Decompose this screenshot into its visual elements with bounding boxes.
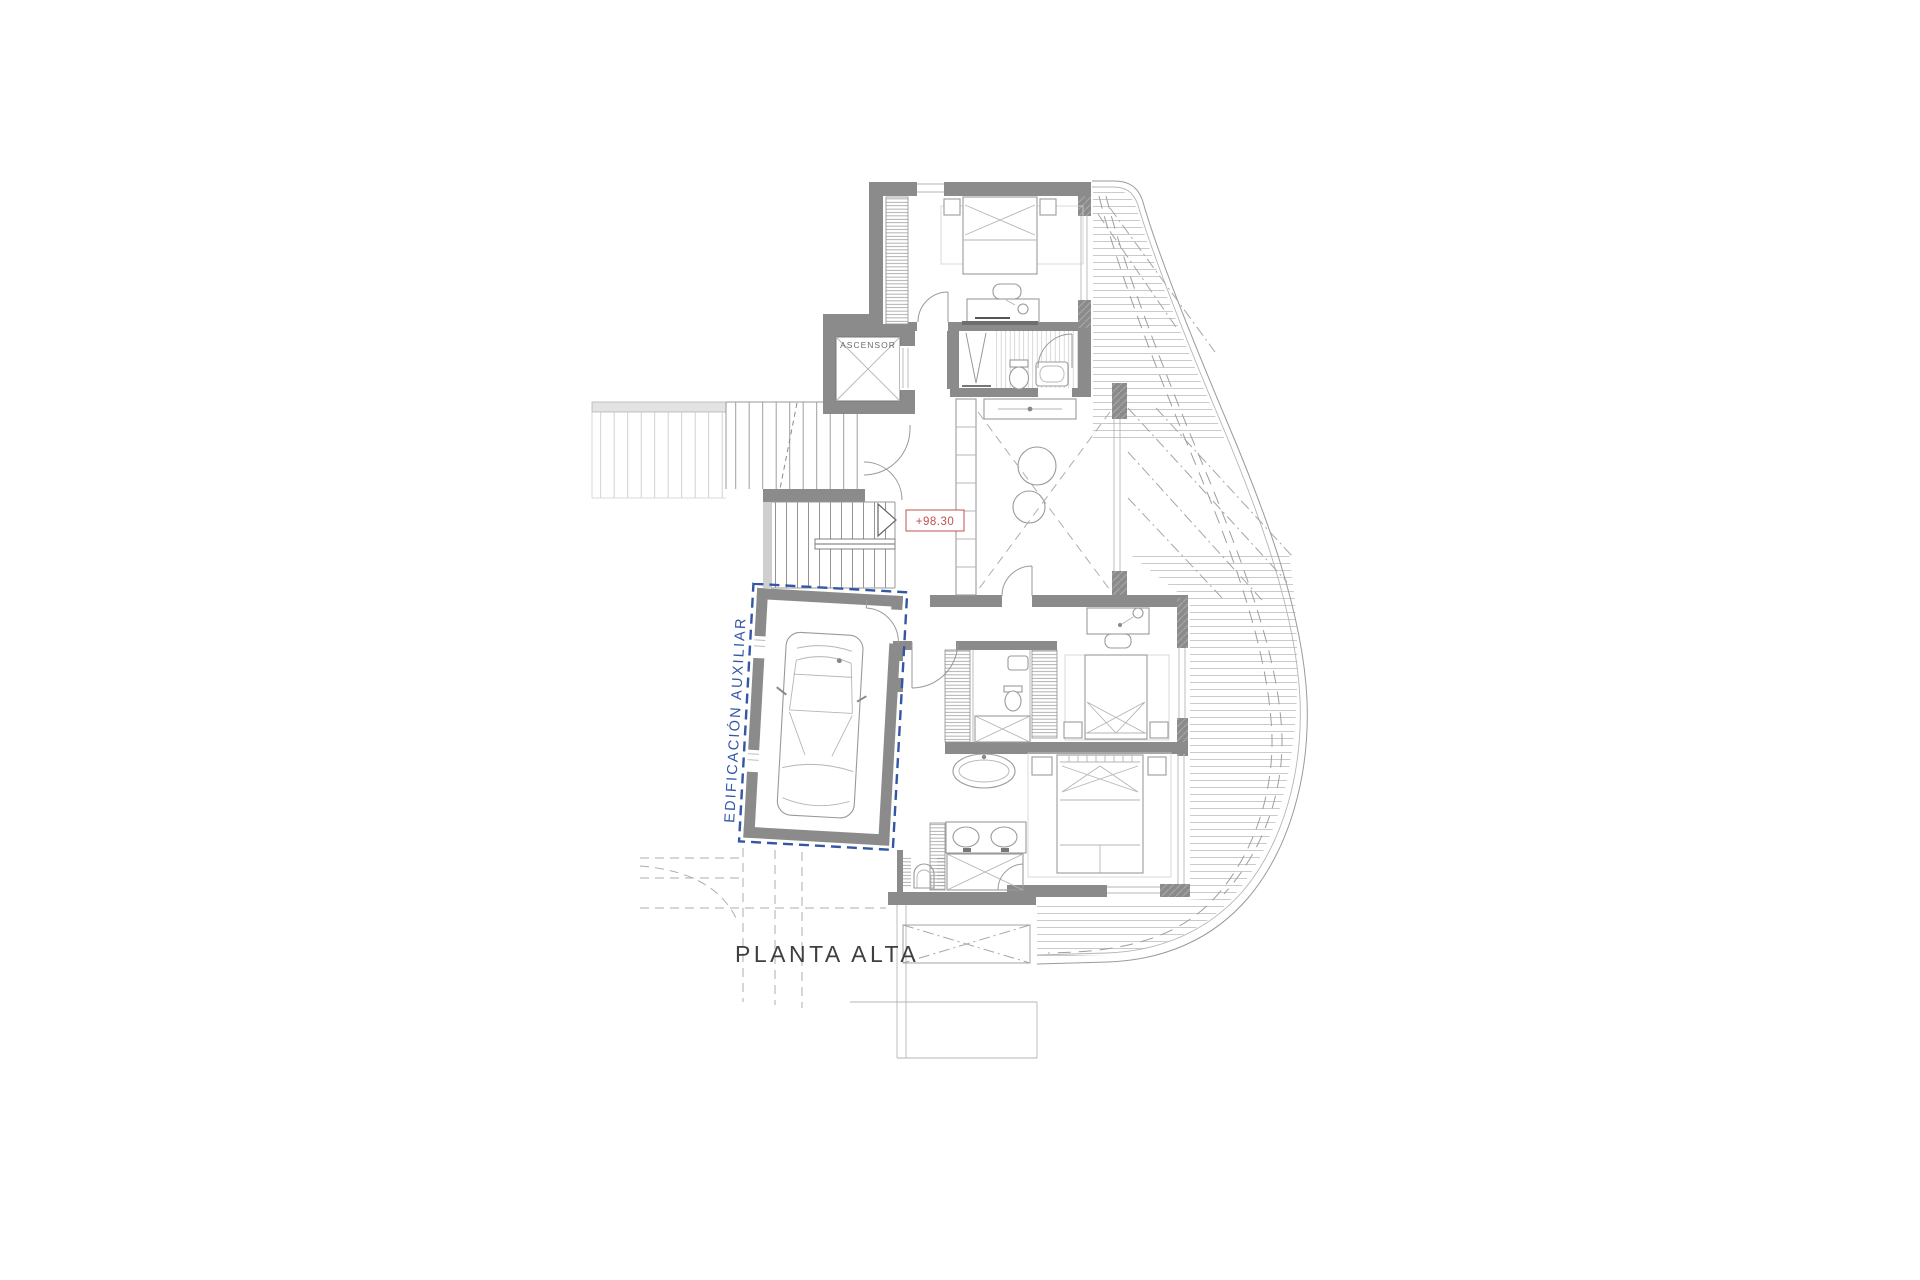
plan-title: PLANTA ALTA: [735, 941, 919, 967]
counter: [962, 321, 1038, 325]
bathtub: [953, 754, 1015, 788]
auxiliary-building-label: EDIFICACIÓN AUXILIAR: [721, 616, 750, 823]
shower: [962, 333, 991, 386]
door-arc: [918, 292, 948, 322]
bathroom-bottom: [899, 754, 1026, 890]
car: [770, 631, 870, 819]
floor-plan-svg: ASCENSOR: [0, 0, 1920, 1280]
stairs-side-wall: [763, 502, 772, 588]
dresser: [984, 399, 1076, 419]
wardrobe: [886, 197, 908, 324]
void-skylight: [903, 925, 1030, 963]
top-bedroom: [886, 197, 1083, 324]
double-vanity: [946, 822, 1026, 853]
exterior-wall-band: [592, 402, 726, 412]
shower: [975, 716, 1030, 742]
shower: [947, 854, 1023, 890]
bottom-bedroom: [1028, 753, 1171, 877]
middle-bedroom: [945, 608, 1169, 742]
floor-plan-canvas: ASCENSOR: [0, 0, 1920, 1280]
toilet: [1010, 360, 1029, 389]
toilet: [1004, 686, 1022, 711]
garage: EDIFICACIÓN AUXILIAR: [720, 583, 907, 850]
level-value: +98.30: [916, 516, 955, 528]
dressing-room: [956, 399, 1110, 596]
closet-nook: [945, 650, 1057, 742]
bathroom-top: [962, 321, 1078, 389]
level-marker: +98.30: [906, 510, 964, 531]
elevator-label: ASCENSOR: [840, 340, 896, 350]
sink: [1008, 656, 1028, 670]
cabinet-column: [956, 399, 976, 595]
bed: [1064, 655, 1168, 739]
stool: [1018, 447, 1056, 485]
elevator: ASCENSOR: [823, 324, 915, 414]
stairs-upper-flight: [726, 402, 858, 489]
desk: [1087, 608, 1149, 648]
desk: [967, 284, 1039, 322]
door-arc: [1002, 566, 1032, 596]
sink: [1036, 362, 1068, 386]
wc: [899, 856, 945, 888]
bed: [1032, 755, 1166, 873]
bed: [944, 197, 1056, 274]
exterior-stairs: [592, 412, 726, 498]
stool: [1013, 491, 1045, 523]
